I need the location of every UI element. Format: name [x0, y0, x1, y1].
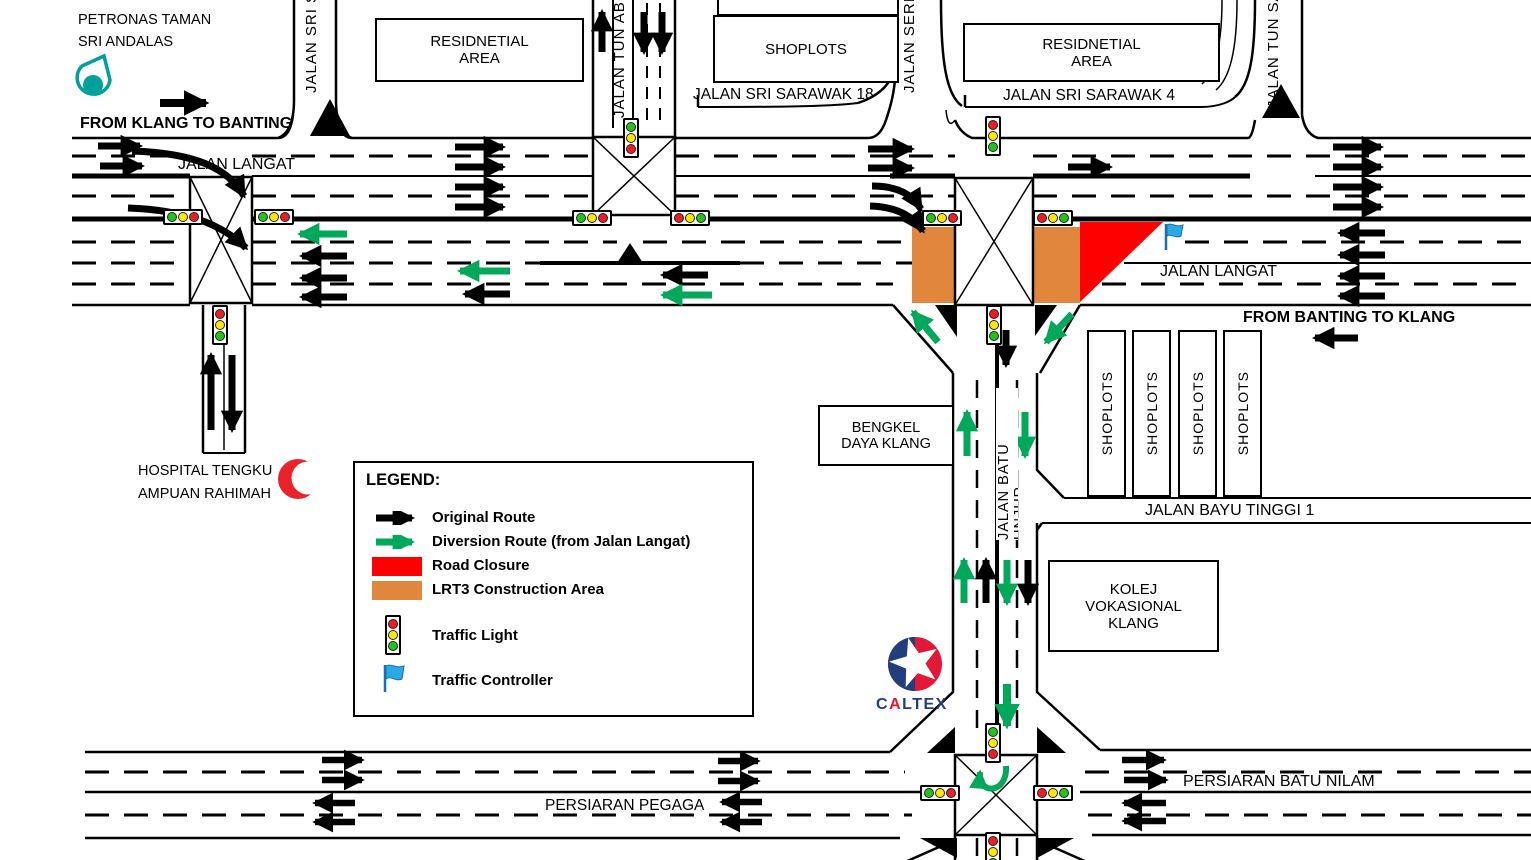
jalan-sri-sarawak-18-label: JALAN SRI SARAWAK 18	[693, 85, 874, 104]
traffic-light-icon	[385, 615, 401, 655]
building-box-partial	[717, 0, 899, 16]
legend-item-label: LRT3 Construction Area	[432, 581, 604, 598]
traffic-light-icon	[985, 116, 1001, 156]
shoplots-north-box: SHOPLOTS	[713, 15, 899, 83]
residential-area-west-box: RESIDNETIAL AREA	[375, 18, 584, 82]
jalan-tun-abd-label: JALAN TUN ABD	[611, 0, 635, 118]
traffic-light-icon	[254, 209, 294, 225]
jalan-langat-west-label: JALAN LANGAT	[178, 155, 295, 175]
caltex-logo	[884, 631, 944, 691]
shoplots-box-2: SHOPLOTS	[1132, 330, 1171, 497]
traffic-light-icon	[985, 832, 1001, 860]
caltex-label: CALTEX	[876, 695, 948, 715]
traffic-light-icon	[986, 305, 1002, 345]
legend-title: LEGEND:	[366, 470, 440, 491]
traffic-diversion-map: RESIDNETIAL AREA SHOPLOTS RESIDNETIAL AR…	[0, 0, 1531, 860]
traffic-light-icon	[985, 723, 1001, 763]
traffic-light-icon	[1033, 785, 1073, 801]
jalan-tun-sa-label: JALAN TUN SA	[1265, 0, 1289, 108]
persiaran-pegaga-label: PERSIARAN PEGAGA	[545, 796, 704, 815]
jalan-bayu-tinggi-1-label: JALAN BAYU TINGGI 1	[1145, 501, 1314, 521]
jalan-langat-east-label: JALAN LANGAT	[1160, 262, 1277, 282]
jalan-sri-se-label: JALAN SRI SE	[303, 0, 327, 93]
legend-item-label: Road Closure	[432, 557, 530, 574]
legend-item-label: Original Route	[432, 509, 535, 526]
traffic-light-icon	[920, 785, 960, 801]
legend-item-label: Diversion Route (from Jalan Langat)	[432, 533, 690, 550]
traffic-light-icon	[922, 210, 962, 226]
construction-area-swatch	[372, 581, 422, 600]
traffic-light-icon	[212, 305, 228, 345]
construction-area-west	[912, 227, 955, 303]
original-route-arrow-icon	[374, 511, 426, 525]
traffic-light-icon	[623, 118, 639, 158]
construction-area-east	[1033, 227, 1080, 303]
red-crescent-icon	[278, 459, 325, 499]
traffic-controller-flag-icon	[1166, 224, 1183, 250]
residential-area-east-box: RESIDNETIAL AREA	[963, 23, 1220, 82]
from-banting-to-klang-label: FROM BANTING TO KLANG	[1243, 308, 1455, 328]
petronas-label: PETRONAS TAMAN SRI ANDALAS	[78, 10, 211, 54]
shoplots-box-4: SHOPLOTS	[1223, 330, 1262, 497]
persiaran-batu-nilam-label: PERSIARAN BATU NILAM	[1183, 772, 1375, 792]
from-klang-to-banting-label: FROM KLANG TO BANTING	[80, 114, 292, 134]
traffic-light-icon	[670, 210, 710, 226]
shoplots-box-3: SHOPLOTS	[1178, 330, 1217, 497]
jalan-seri-s-label: JALAN SERI S	[901, 0, 925, 93]
hospital-label: HOSPITAL TENGKU AMPUAN RAHIMAH	[138, 460, 272, 506]
road-closure-swatch	[372, 557, 422, 576]
jalan-sri-sarawak-4-label: JALAN SRI SARAWAK 4	[1003, 86, 1175, 105]
petronas-logo	[77, 56, 110, 95]
shoplots-box-1: SHOPLOTS	[1087, 330, 1126, 497]
bengkel-daya-klang-box: BENGKEL DAYA KLANG	[818, 405, 954, 466]
kolej-vokasional-klang-box: KOLEJ VOKASIONAL KLANG	[1048, 560, 1219, 652]
traffic-light-icon	[572, 210, 612, 226]
traffic-light-icon	[1033, 210, 1073, 226]
legend-item-label: Traffic Controller	[432, 672, 553, 689]
jalan-batu-unjur-label: JALAN BATU UNJUR	[996, 388, 1018, 540]
diversion-route-arrow-icon	[374, 535, 426, 549]
legend-item-label: Traffic Light	[432, 627, 518, 644]
traffic-controller-flag-icon	[381, 662, 407, 694]
traffic-light-icon	[163, 209, 203, 225]
